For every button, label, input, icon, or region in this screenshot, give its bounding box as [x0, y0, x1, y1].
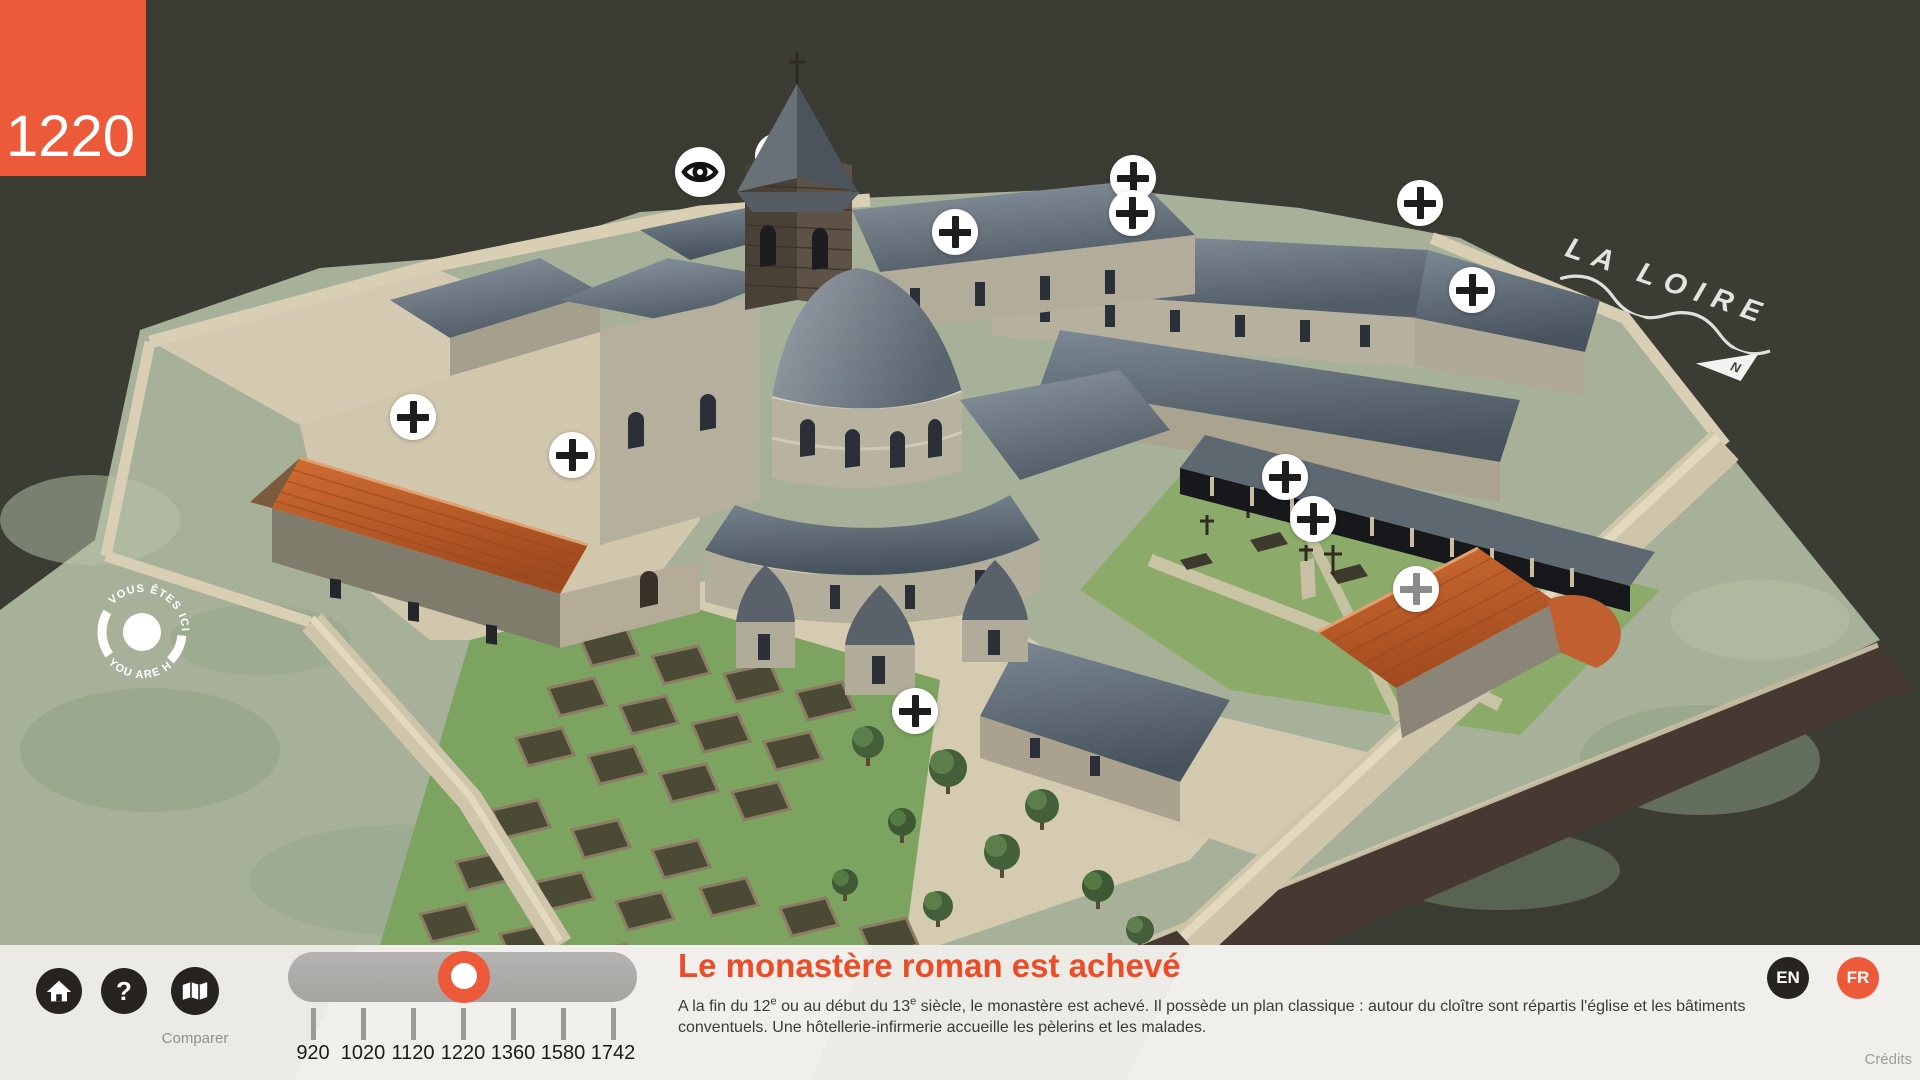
hotspot-plus-8[interactable] [1262, 454, 1308, 500]
hotspot-plus-5[interactable] [932, 209, 978, 255]
abbey-timeline-app: VOUS ÊTES ICI YOU ARE HERE LA LOIRE N 12… [0, 0, 1920, 1080]
help-button[interactable]: ? [101, 968, 147, 1014]
year-badge: 1220 [0, 0, 146, 176]
timeline-tick-1360 [511, 1008, 516, 1040]
hotspot-plus-2[interactable] [1109, 190, 1155, 236]
hotspot-eye[interactable] [675, 147, 725, 197]
timeline-year-1120[interactable]: 1120 [391, 1042, 434, 1065]
abbey-3d-scene[interactable]: VOUS ÊTES ICI YOU ARE HERE LA LOIRE N 12… [0, 0, 1920, 945]
timeline-year-920[interactable]: 920 [296, 1042, 329, 1065]
timeline-tick-920 [311, 1008, 316, 1040]
hotspot-layer [0, 0, 1920, 945]
panel-description: A la fin du 12e ou au début du 13e siècl… [678, 996, 1773, 1038]
hotspot-plus-4[interactable] [1449, 267, 1495, 313]
bottom-bar: ? Comparer 920102011201220136015801742 L… [0, 945, 1920, 1080]
hotspot-plus-7[interactable] [549, 432, 595, 478]
timeline-tick-1220 [461, 1008, 466, 1040]
timeline-year-1742[interactable]: 1742 [591, 1042, 636, 1065]
compare-label: Comparer [162, 1030, 229, 1047]
question-mark-icon: ? [116, 976, 132, 1007]
timeline-tick-1742 [611, 1008, 616, 1040]
home-icon [44, 976, 74, 1006]
compare-button[interactable] [171, 967, 219, 1015]
timeline-year-1360[interactable]: 1360 [491, 1042, 536, 1065]
hotspot-plus-3[interactable] [1397, 180, 1443, 226]
timeline-year-1220[interactable]: 1220 [441, 1042, 486, 1065]
hotspot-plus-10[interactable] [1393, 566, 1439, 612]
timeline-year-1580[interactable]: 1580 [541, 1042, 586, 1065]
timeline-tick-1580 [561, 1008, 566, 1040]
timeline-tick-1020 [361, 1008, 366, 1040]
map-icon [180, 976, 210, 1006]
eye-icon [675, 147, 725, 197]
panel-title: Le monastère roman est achevé [678, 947, 1181, 985]
language-label-en: EN [1776, 968, 1800, 988]
home-button[interactable] [36, 968, 82, 1014]
language-button-fr[interactable]: FR [1837, 957, 1879, 999]
timeline-year-1020[interactable]: 1020 [341, 1042, 386, 1065]
language-button-en[interactable]: EN [1767, 957, 1809, 999]
language-label-fr: FR [1847, 968, 1870, 988]
hotspot-plus-11[interactable] [892, 688, 938, 734]
timeline-tick-1120 [411, 1008, 416, 1040]
hotspot-plus-9[interactable] [1290, 496, 1336, 542]
credits-link[interactable]: Crédits [1864, 1051, 1912, 1068]
timeline-handle[interactable] [438, 951, 490, 1003]
hotspot-plus-6[interactable] [390, 394, 436, 440]
timeline-handle-dot [451, 963, 477, 989]
